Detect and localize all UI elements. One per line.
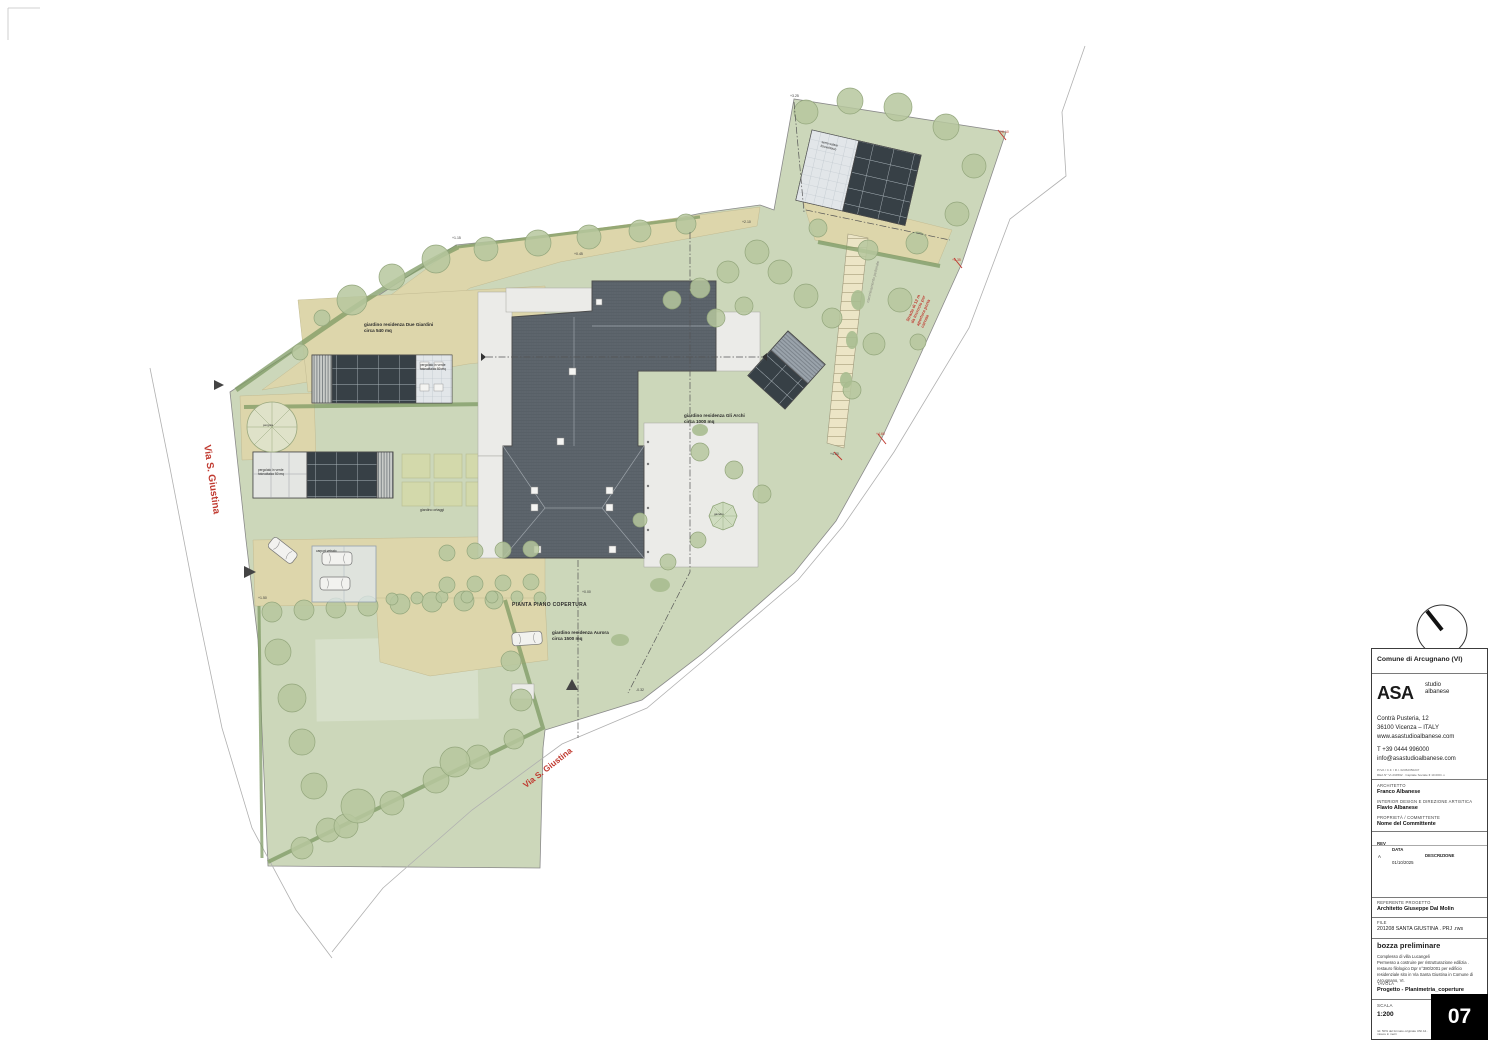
comune-title: Comune di Arcugnano (VI) xyxy=(1377,656,1484,663)
proprieta-label: PROPRIETÀ / COMMITTENTE xyxy=(1377,815,1484,820)
spot-elevation: -0.32 xyxy=(636,688,644,692)
spot-elevation: +3.25 xyxy=(790,94,799,98)
feature-label-round-pergola: pergola xyxy=(263,424,273,428)
tavola-name: Progetto - Planimetria_coperture xyxy=(1377,987,1484,993)
garden-label-gli-archi: giardino residenza Gli Archi circa 1000 … xyxy=(684,413,745,425)
feature-label-carport: carport vetrato xyxy=(316,549,337,553)
rev-table-header: REV DATA DESCRIZIONE xyxy=(1377,835,1484,843)
logo-sub: studio albanese xyxy=(1425,682,1449,696)
title-block: Comune di Arcugnano (VI) ASA studio alba… xyxy=(1371,648,1488,1040)
drawing-sheet: PIANTA PIANO COPERTURA giardino residenz… xyxy=(0,0,1494,1050)
garden-label-ortaggi: giardino ortaggi xyxy=(420,508,444,513)
feature-label-pergola-b: pergolato in verde fotovoltaico 50 mq xyxy=(258,468,284,476)
spot-elevation: +0.45 xyxy=(574,252,583,256)
plan-title: PIANTA PIANO COPERTURA xyxy=(512,602,587,609)
proprieta-name: Nome del Committente xyxy=(1377,821,1484,827)
site-plan-canvas xyxy=(0,0,1494,1050)
studio-fiscal: P.IVA / C.F. / R.I. 02452350247 REA N° V… xyxy=(1377,768,1484,777)
studio-logo: ASA studio albanese xyxy=(1377,677,1484,711)
interior-label: INTERIOR DESIGN E DIREZIONE ARTISTICA xyxy=(1377,799,1484,804)
project-description: Complesso di villa Lucangeli Permesso a … xyxy=(1377,954,1484,983)
file-name: 201208 SANTA GIUSTINA . PRJ .rws xyxy=(1377,926,1484,932)
feature-label-gazebo: gazebo xyxy=(714,513,724,517)
spot-elevation: +6.10 xyxy=(1000,130,1009,134)
studio-address: Contrà Pusteria, 12 36100 Vicenza – ITAL… xyxy=(1377,715,1484,742)
logo-asa: ASA xyxy=(1377,683,1414,703)
spot-elevation: +4.60 xyxy=(876,432,885,436)
spot-elevation: +2.10 xyxy=(742,220,751,224)
sheet-number: 07 xyxy=(1448,1005,1471,1029)
garden-label-aurora: giardino residenza Aurora circa 1500 mq xyxy=(552,630,609,642)
referente-label: REFERENTE PROGETTO xyxy=(1377,900,1484,905)
tavola-label: TAVOLA xyxy=(1377,981,1484,986)
architetto-label: ARCHITETTO xyxy=(1377,783,1484,788)
rev-table-row: A 01/10/2025 xyxy=(1377,848,1484,856)
footer-note: rid. 50% del formato originale UNI A1 · … xyxy=(1377,1030,1429,1037)
studio-contacts: T +39 0444 996000 info@asastudioalbanese… xyxy=(1377,746,1484,764)
spot-elevation: +1.15 xyxy=(452,236,461,240)
rev-value: A xyxy=(1378,854,1381,859)
spot-elevation: +5.35 xyxy=(952,258,961,262)
status-text: bozza preliminare xyxy=(1377,941,1484,950)
sheet-number-box: 07 xyxy=(1431,994,1488,1040)
interior-name: Flavio Albanese xyxy=(1377,805,1484,811)
crop-mark xyxy=(8,8,40,40)
spot-elevation: +0.00 xyxy=(582,590,591,594)
spot-elevation: +1.50 xyxy=(258,596,267,600)
file-label: FILE xyxy=(1377,920,1484,925)
feature-label-pergola-a: pergolato in verde fotovoltaico 50 mq xyxy=(420,363,446,371)
spot-elevation: +4.20 xyxy=(830,452,839,456)
referente-name: Architetto Giuseppe Dal Molin xyxy=(1377,906,1484,912)
garden-label-due-giardini: giardino residenza Due Giardini circa 54… xyxy=(364,322,433,334)
rev-date: 01/10/2025 xyxy=(1392,860,1414,865)
architetto-name: Franco Albanese xyxy=(1377,789,1484,795)
